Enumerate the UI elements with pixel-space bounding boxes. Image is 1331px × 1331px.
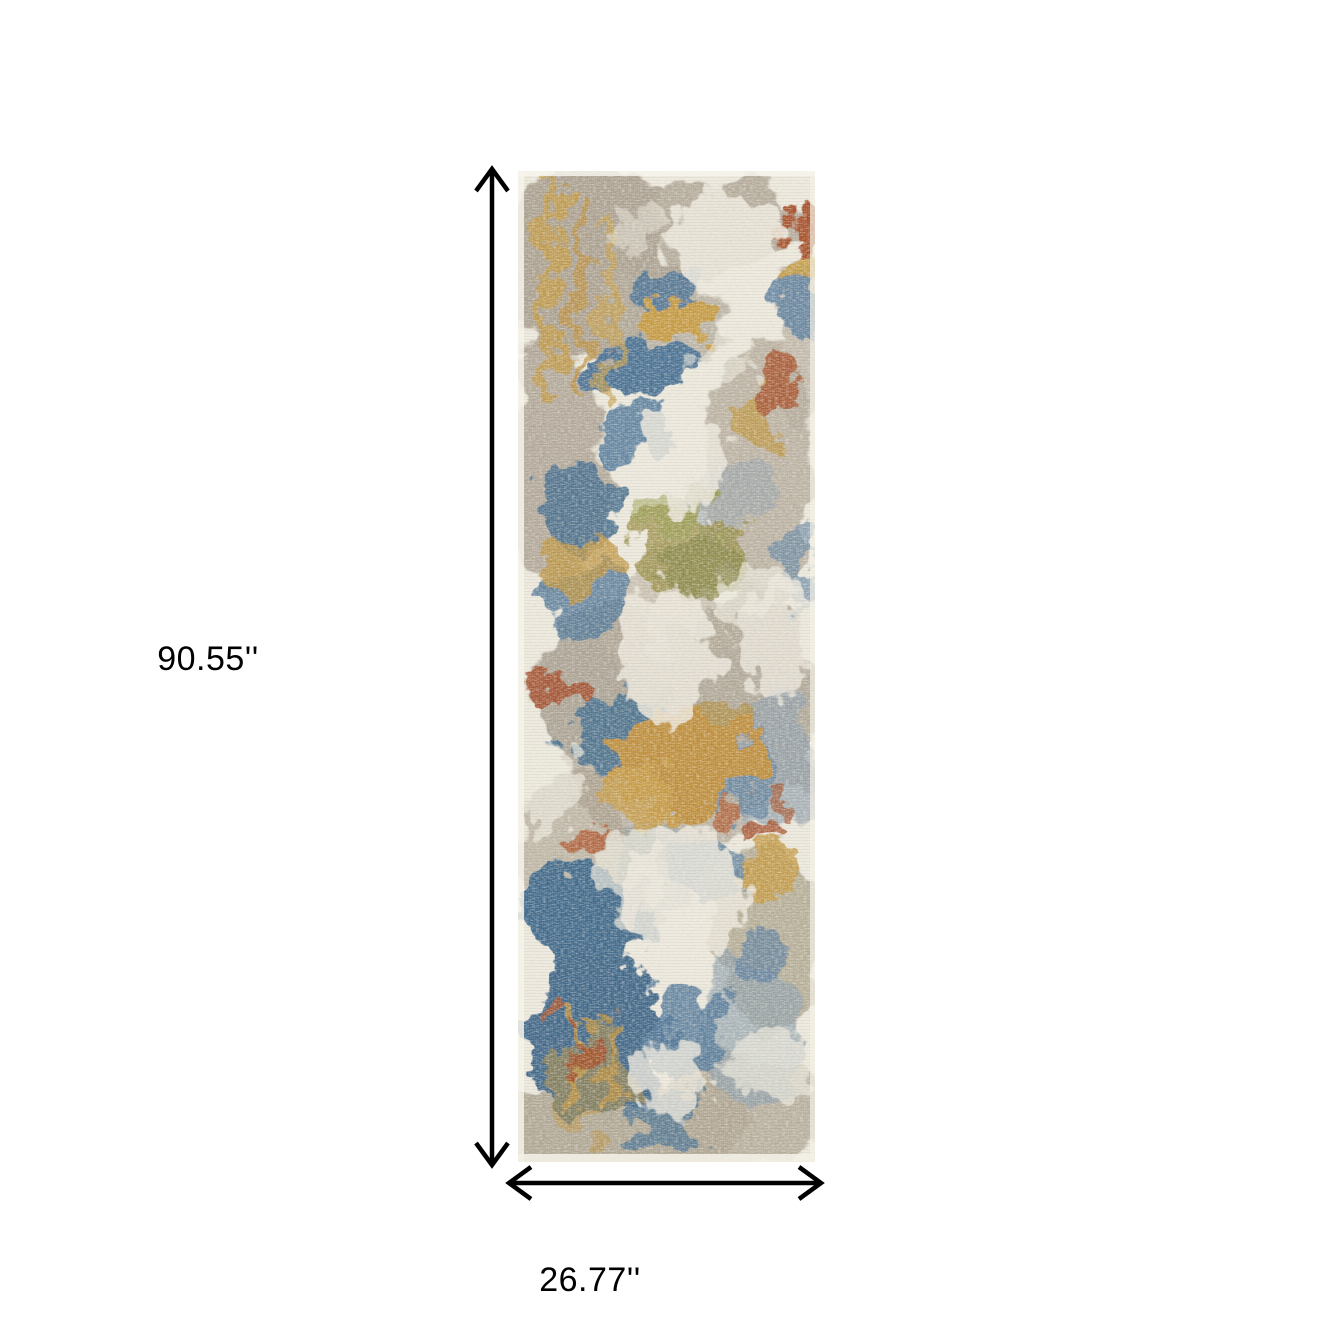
width-dimension-arrow [500, 1161, 830, 1205]
rug-photo [518, 171, 815, 1162]
height-dimension-label: 90.55'' [118, 640, 298, 678]
height-dimension-arrow [470, 160, 514, 1174]
rug-artwork [518, 171, 815, 1162]
width-dimension-label: 26.77'' [500, 1261, 680, 1299]
product-dimension-image: 90.55'' 26.77'' [0, 0, 1331, 1331]
